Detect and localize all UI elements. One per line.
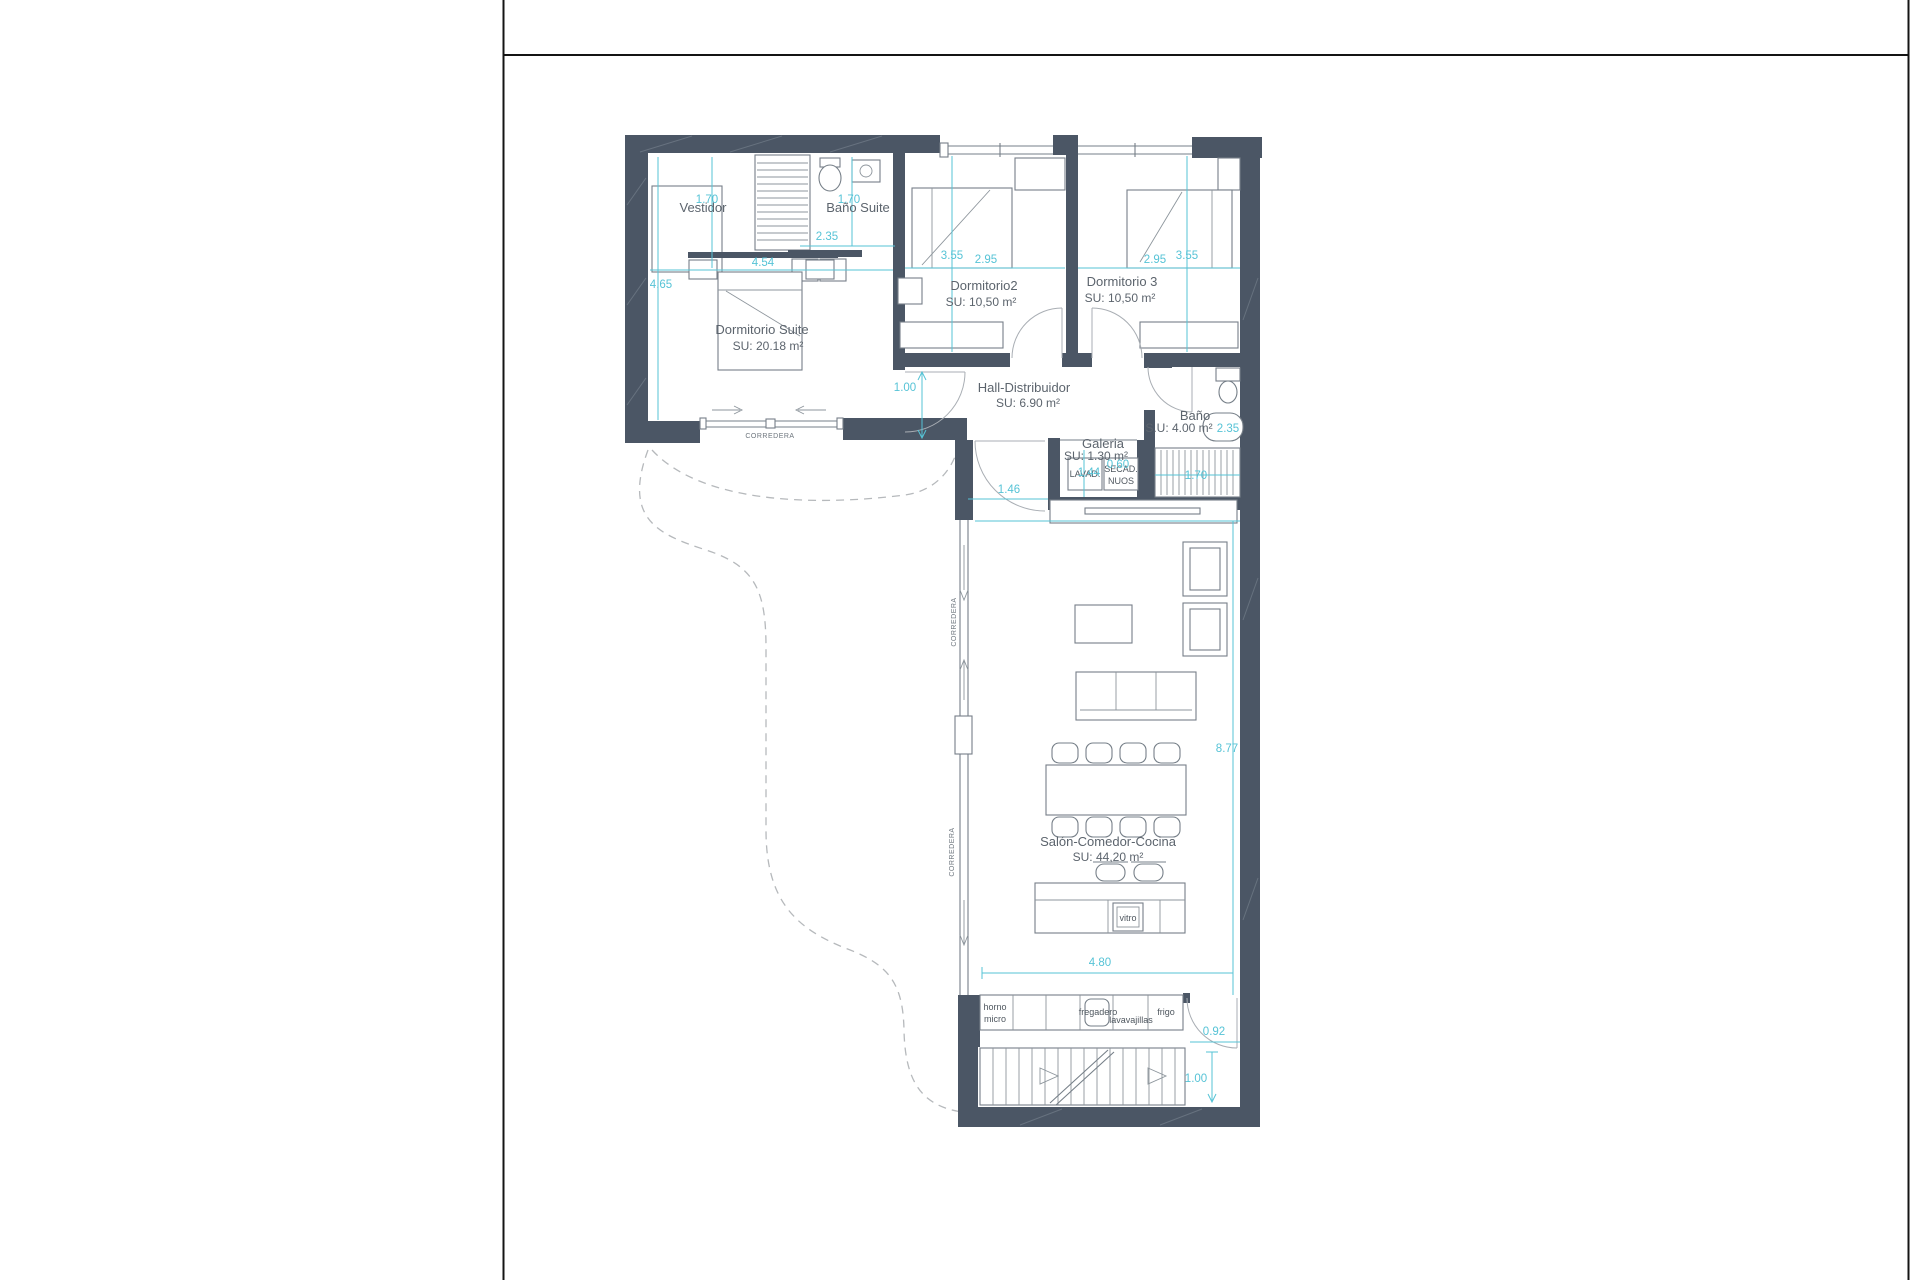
coffee-table [1075,605,1132,643]
room-label-dormitorio3: Dormitorio 3 [1087,274,1158,289]
dorm3-door [1092,308,1142,358]
dim-stairs-width: 1.70 [1185,470,1207,482]
dorm3-cabinet [1218,158,1240,190]
dim-bano-suite-depth: 2.35 [816,231,838,243]
bottom-stairs [980,1048,1185,1105]
room-area-dormitorio3: SU: 10,50 m² [1085,291,1156,305]
appliance-label-vitro: vitro [1119,913,1136,923]
sliding-door-suite [700,406,843,429]
dorm2-nightstand [898,278,922,304]
room-area-bano: S.U: 4.00 m² [1145,421,1212,435]
dorm2-cabinet [1015,158,1065,190]
appliance-label-lavavajillas: lavavajillas [1109,1015,1153,1025]
dim-entry-door: 0.92 [1203,1026,1225,1038]
dorm3-bench [1140,322,1238,348]
dim-bath-tub: 2.35 [1217,423,1239,435]
sliding-glass-wall-west [955,520,972,995]
room-area-dormitorio2: SU: 10,50 m² [946,295,1017,309]
room-label-salon: Salón-Comedor-Cocina [1040,834,1177,849]
bathroom-door [1148,367,1192,412]
kitchen-island [1035,883,1185,933]
dim-bano-suite-width: 1.70 [838,194,860,206]
suite-bed [718,272,802,370]
room-area-salon: SU: 44,20 m² [1073,850,1144,864]
bano-suite-toilet [819,158,841,191]
dining-table [1046,743,1186,837]
dim-suite-width: 4.54 [752,257,775,269]
dorm2-door [1012,308,1062,358]
armchair-2 [1183,603,1227,656]
bano-suite-sink [852,160,880,182]
island-stools [1093,862,1166,881]
entry-door [1187,998,1237,1048]
terrace-boundary-dashed [640,448,962,1112]
corredera-label-west-lower: CORREDERA [949,827,956,876]
sofa [1076,672,1196,720]
dim-dorm2-depth: 3.55 [941,250,963,262]
room-label-dormitorio2: Dormitorio2 [950,278,1017,293]
room-label-hall: Hall-Distribuidor [978,380,1071,395]
dim-hall-opening: 1.00 [894,382,916,394]
appliance-label-nuos: NUOS [1108,476,1134,486]
tv-console [1050,500,1237,523]
floor-plan-drawing: Vestidor Baño Suite Dormitorio Suite SU:… [0,0,1920,1280]
appliance-label-frigo: frigo [1157,1007,1175,1017]
dim-dorm3-width: 2.95 [1144,254,1166,266]
corredera-label-suite: CORREDERA [745,433,794,440]
room-area-dormitorio-suite: SU: 20.18 m² [733,339,804,353]
dim-suite-left-height: 4.65 [650,279,672,291]
dim-stair-landing: 1.00 [1185,1073,1207,1085]
corredera-label-west-upper: CORREDERA [951,597,958,646]
dim-vestidor-width: 1.70 [696,194,718,206]
dim-galeria-secadora: 0.60 [1107,459,1129,471]
dim-hall-door: 1.46 [998,484,1020,496]
room-area-hall: SU: 6.90 m² [996,396,1060,410]
upper-stairs [755,155,810,250]
appliance-label-horno: horno [983,1002,1006,1012]
dim-salon-width: 4.80 [1089,957,1111,969]
window-north-dorm2 [940,143,1053,157]
armchair-1 [1183,542,1227,596]
window-north-dorm3 [1078,143,1192,157]
dim-salon-length: 8.77 [1216,743,1238,755]
bathroom-toilet [1216,368,1240,403]
dim-galeria-lavadora: 1.44 [1078,467,1101,479]
dim-dorm3-depth: 3.55 [1176,250,1198,262]
room-label-dormitorio-suite: Dormitorio Suite [715,322,808,337]
hall-living-door [975,441,1045,511]
appliance-label-micro: micro [984,1014,1006,1024]
dim-dorm2-width: 2.95 [975,254,997,266]
floor-plan-page: Vestidor Baño Suite Dormitorio Suite SU:… [0,0,1920,1280]
